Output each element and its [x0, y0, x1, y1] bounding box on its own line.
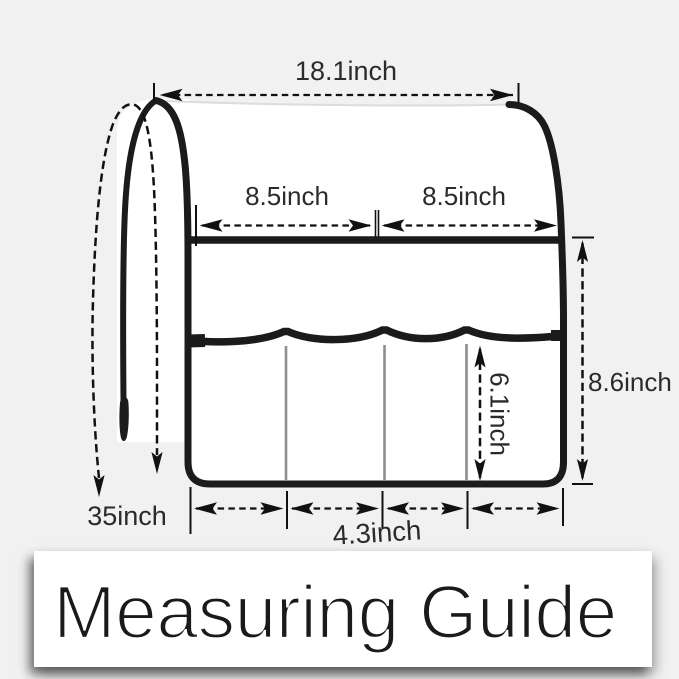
svg-text:8.5inch: 8.5inch — [245, 181, 329, 211]
svg-text:6.1inch: 6.1inch — [485, 372, 515, 456]
svg-text:8.6inch: 8.6inch — [588, 367, 672, 397]
svg-text:8.5inch: 8.5inch — [422, 181, 506, 211]
svg-text:35inch: 35inch — [87, 501, 167, 531]
svg-text:4.3inch: 4.3inch — [332, 514, 422, 550]
svg-text:18.1inch: 18.1inch — [295, 56, 397, 86]
